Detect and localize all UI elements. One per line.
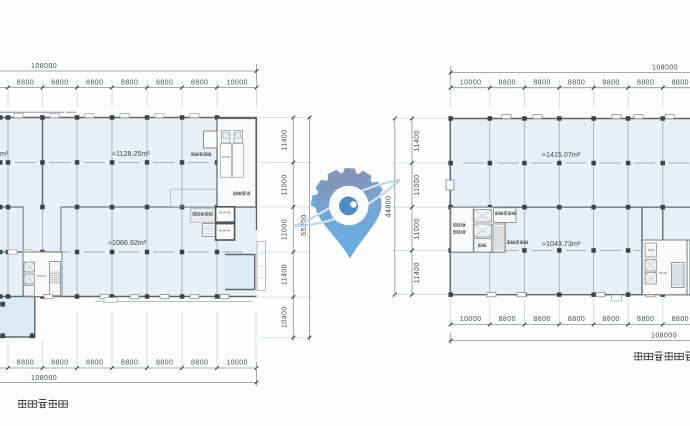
- svg-text:8800: 8800: [602, 316, 619, 323]
- svg-text:8800: 8800: [191, 80, 208, 87]
- svg-text:8800: 8800: [568, 80, 585, 87]
- svg-text:8800: 8800: [17, 360, 34, 367]
- svg-text:8800: 8800: [51, 80, 68, 87]
- svg-text:11400: 11400: [282, 129, 289, 150]
- svg-text:8800: 8800: [86, 80, 103, 87]
- svg-text:11000: 11000: [414, 218, 421, 239]
- svg-text:8800: 8800: [672, 80, 689, 87]
- svg-text:8800: 8800: [191, 360, 208, 367]
- svg-text:≈1415.07m²: ≈1415.07m²: [542, 150, 581, 159]
- svg-text:108000: 108000: [651, 333, 677, 340]
- svg-text:11400: 11400: [414, 262, 421, 283]
- svg-text:8800: 8800: [672, 316, 689, 323]
- svg-text:108000: 108000: [652, 65, 678, 72]
- svg-text:5.92m²: 5.92m²: [0, 149, 9, 158]
- svg-text:8800: 8800: [533, 316, 550, 323]
- svg-text:8800: 8800: [499, 316, 516, 323]
- svg-text:11000: 11000: [282, 174, 289, 195]
- svg-text:8800: 8800: [637, 316, 654, 323]
- svg-text:≈1043.73m²: ≈1043.73m²: [542, 239, 581, 248]
- svg-text:8800: 8800: [533, 80, 550, 87]
- svg-text:10000: 10000: [226, 360, 248, 367]
- svg-text:8800: 8800: [156, 80, 173, 87]
- svg-text:8800: 8800: [499, 80, 516, 87]
- svg-text:8800: 8800: [602, 80, 619, 87]
- svg-text:8800: 8800: [121, 80, 138, 87]
- svg-text:10000: 10000: [460, 80, 482, 87]
- svg-text:11000: 11000: [414, 174, 421, 195]
- svg-text:10000: 10000: [226, 80, 248, 87]
- svg-text:11400: 11400: [282, 264, 289, 285]
- svg-text:≈1066.92m²: ≈1066.92m²: [108, 238, 147, 247]
- svg-text:8800: 8800: [51, 360, 68, 367]
- svg-text:8800: 8800: [568, 316, 585, 323]
- svg-text:11000: 11000: [282, 219, 289, 240]
- svg-text:10000: 10000: [460, 316, 482, 323]
- svg-text:11400: 11400: [414, 130, 421, 151]
- svg-text:10400: 10400: [282, 306, 289, 328]
- svg-text:8800: 8800: [121, 360, 138, 367]
- svg-text:108000: 108000: [31, 375, 57, 382]
- svg-text:8800: 8800: [17, 80, 34, 87]
- svg-text:≈1128.25m²: ≈1128.25m²: [112, 149, 150, 158]
- svg-text:8800: 8800: [86, 360, 103, 367]
- svg-text:8800: 8800: [156, 360, 173, 367]
- svg-text:108000: 108000: [31, 63, 57, 70]
- svg-text:44800: 44800: [386, 196, 393, 218]
- svg-text:8800: 8800: [637, 80, 654, 87]
